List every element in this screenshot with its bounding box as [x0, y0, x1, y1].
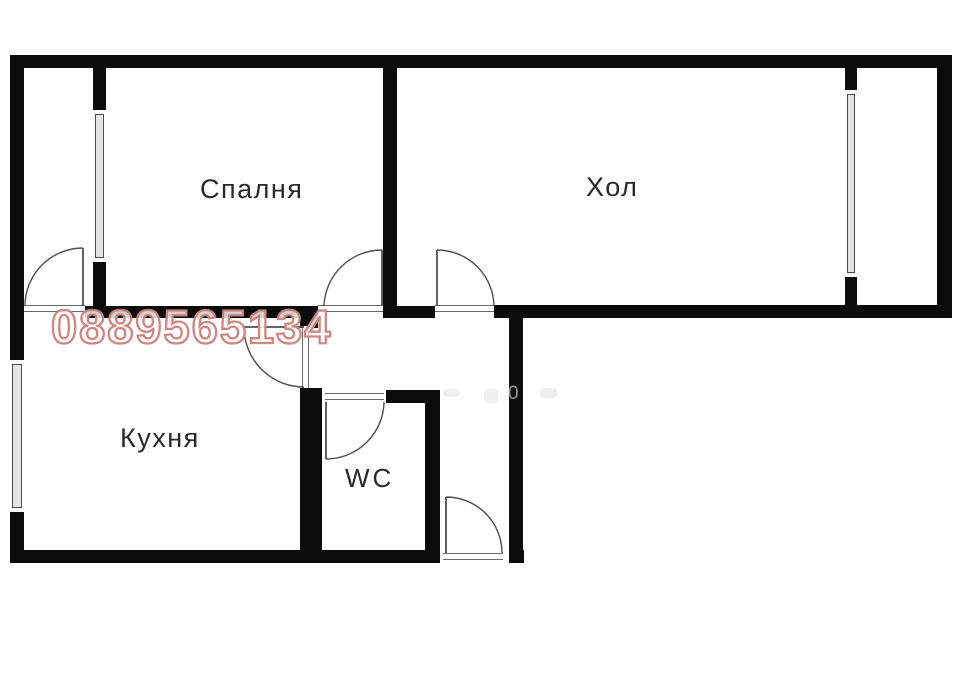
wc-door [326, 402, 384, 459]
closet-door [25, 248, 83, 306]
bedroom-label: Спалня [200, 174, 303, 205]
kitchen-label: Кухня [120, 423, 200, 454]
entrance-door [446, 497, 502, 553]
phone-watermark: 0889565134 [51, 299, 332, 354]
living-room-label: Хол [586, 172, 638, 203]
living-room-door [437, 250, 494, 306]
bedroom-door [324, 250, 382, 306]
wc-label: WC [345, 463, 394, 494]
floor-plan: Спалня Хол Кухня WC 0889565134 0 [0, 0, 960, 679]
faint-watermark-zero: 0 [508, 383, 519, 405]
